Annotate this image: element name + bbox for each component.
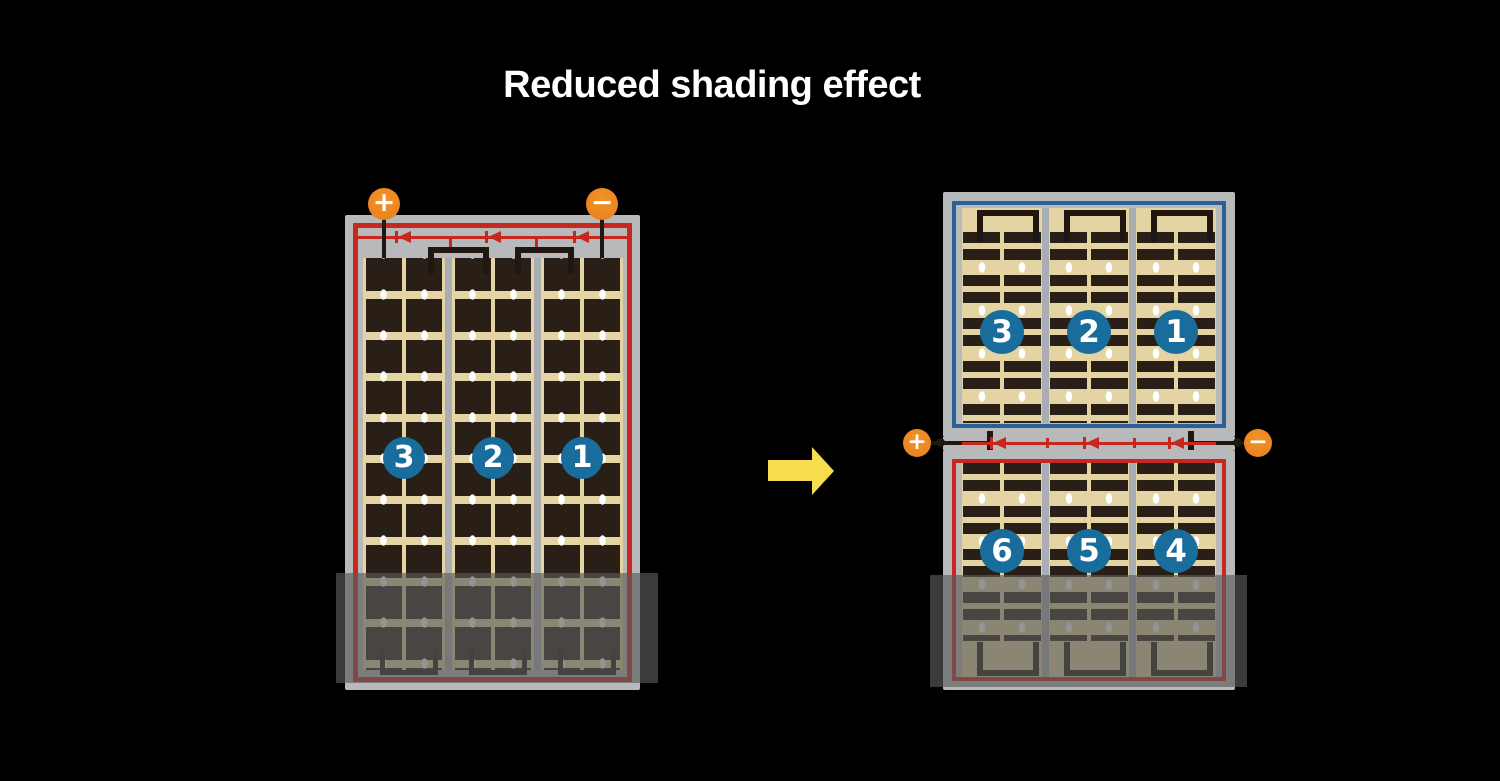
lead-joint: [936, 438, 945, 447]
bypass-diode-icon: [1083, 437, 1099, 449]
minus-terminal: −: [1244, 429, 1272, 457]
string-number-badge: 3: [383, 437, 425, 479]
busbar-tap: [449, 238, 452, 247]
string-number-badge: 3: [980, 310, 1024, 354]
string-number-badge: 5: [1067, 529, 1111, 573]
bypass-diode-icon: [573, 231, 589, 243]
arrow-head: [812, 447, 834, 495]
string-link-connector: [1151, 210, 1213, 242]
minus-terminal: −: [586, 188, 618, 220]
diagram-canvas: Reduced shading effect + − 3 2: [0, 0, 1500, 781]
bypass-diode-icon: [395, 231, 411, 243]
lead-joint: [1233, 438, 1242, 447]
diagram-title: Reduced shading effect: [312, 64, 1112, 107]
string-number-badge: 2: [472, 437, 514, 479]
plus-terminal: +: [903, 429, 931, 457]
bypass-diode-icon: [990, 437, 1006, 449]
arrow-shaft: [768, 460, 812, 481]
bypass-diode-icon: [485, 231, 501, 243]
string-number-badge: 4: [1154, 529, 1198, 573]
string-link-connector: [977, 210, 1039, 242]
shade-overlay-right: [930, 575, 1247, 687]
bypass-diode-icon: [1168, 437, 1184, 449]
string-number-badge: 1: [561, 437, 603, 479]
plus-terminal: +: [368, 188, 400, 220]
string-number-badge: 2: [1067, 310, 1111, 354]
busbar-tap: [1046, 438, 1049, 448]
shade-overlay-left: [336, 573, 658, 683]
string-link-connector: [428, 247, 489, 274]
busbar-tap: [1133, 438, 1136, 448]
string-number-badge: 1: [1154, 310, 1198, 354]
string-link-connector: [1064, 210, 1126, 242]
string-number-badge: 6: [980, 529, 1024, 573]
string-link-connector: [515, 247, 574, 274]
busbar-tap: [535, 238, 538, 247]
